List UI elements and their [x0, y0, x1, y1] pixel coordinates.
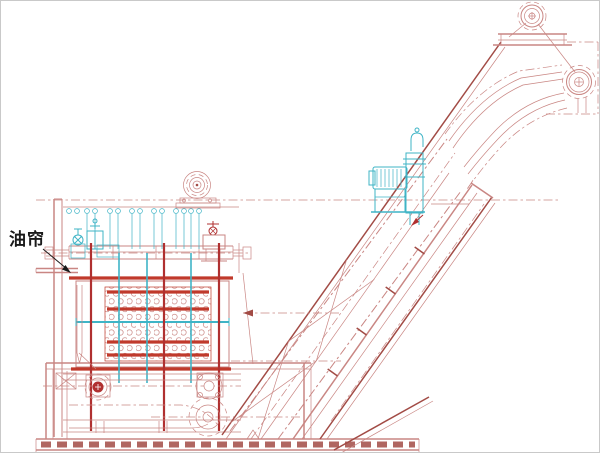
back-edge	[222, 42, 501, 435]
discharge-curve	[445, 65, 567, 189]
head-pulley	[509, 2, 575, 72]
inner-perforated-plate	[105, 287, 211, 361]
filter-plates	[69, 243, 253, 369]
bottom-rollers	[43, 373, 301, 436]
motor	[369, 167, 407, 189]
machine-drawing-svg: 油帘	[1, 1, 600, 453]
weld-mark	[247, 430, 259, 439]
clamp-right	[201, 221, 227, 261]
oil-curtain-label: 油帘	[9, 229, 45, 250]
level-gauge	[77, 285, 96, 369]
conveyor-frame-lines	[222, 42, 505, 453]
discharge-pulley	[563, 66, 596, 114]
oil-curtain-bar	[36, 269, 78, 273]
chain-path	[63, 405, 241, 433]
trough-end-cap	[471, 183, 493, 198]
drive-roller	[85, 374, 111, 400]
outlet-arrow	[411, 215, 423, 226]
tank	[46, 363, 311, 439]
inclined-conveyor	[222, 2, 598, 453]
technical-drawing: 油帘	[0, 0, 600, 453]
truss-bracing	[231, 260, 375, 439]
belt-line	[538, 24, 575, 72]
bearing-housing	[176, 172, 220, 209]
gooseneck-pipe	[411, 133, 423, 151]
head-pulley-pedestal	[493, 34, 572, 45]
pump-unit	[369, 128, 426, 226]
left-column	[54, 199, 62, 437]
